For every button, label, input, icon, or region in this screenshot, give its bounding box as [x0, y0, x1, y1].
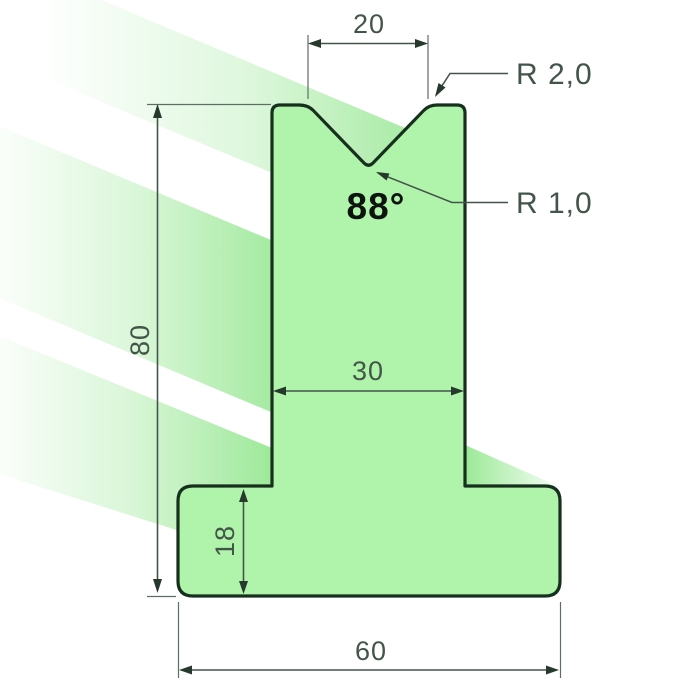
arrowhead-left: [308, 39, 321, 48]
dim-base-width: 60: [179, 602, 561, 678]
base-width-label: 60: [355, 636, 387, 666]
arrowhead-left: [179, 666, 192, 675]
top-width-label: 20: [353, 9, 385, 39]
base-height-label: 18: [210, 525, 240, 557]
dim-top-width: 20: [308, 9, 428, 99]
leader-line: [436, 74, 508, 96]
die-drawing-svg: 20 R 2,0 R 1,0 88° 30: [0, 0, 700, 700]
arrowhead-right: [415, 39, 428, 48]
arrowhead: [435, 83, 446, 97]
shadow-wedge-right-of-stem: [465, 445, 560, 487]
total-height-label: 80: [125, 324, 155, 356]
groove-angle-label: 88°: [347, 186, 406, 227]
technical-drawing-canvas: 20 R 2,0 R 1,0 88° 30: [0, 0, 700, 700]
leader-radius-top: R 2,0: [435, 58, 593, 97]
stem-width-label: 30: [352, 356, 384, 386]
radius-bottom-label: R 1,0: [516, 187, 593, 220]
arrowhead-bottom: [153, 579, 162, 593]
radius-top-label: R 2,0: [516, 58, 593, 91]
arrowhead-right: [546, 666, 559, 675]
